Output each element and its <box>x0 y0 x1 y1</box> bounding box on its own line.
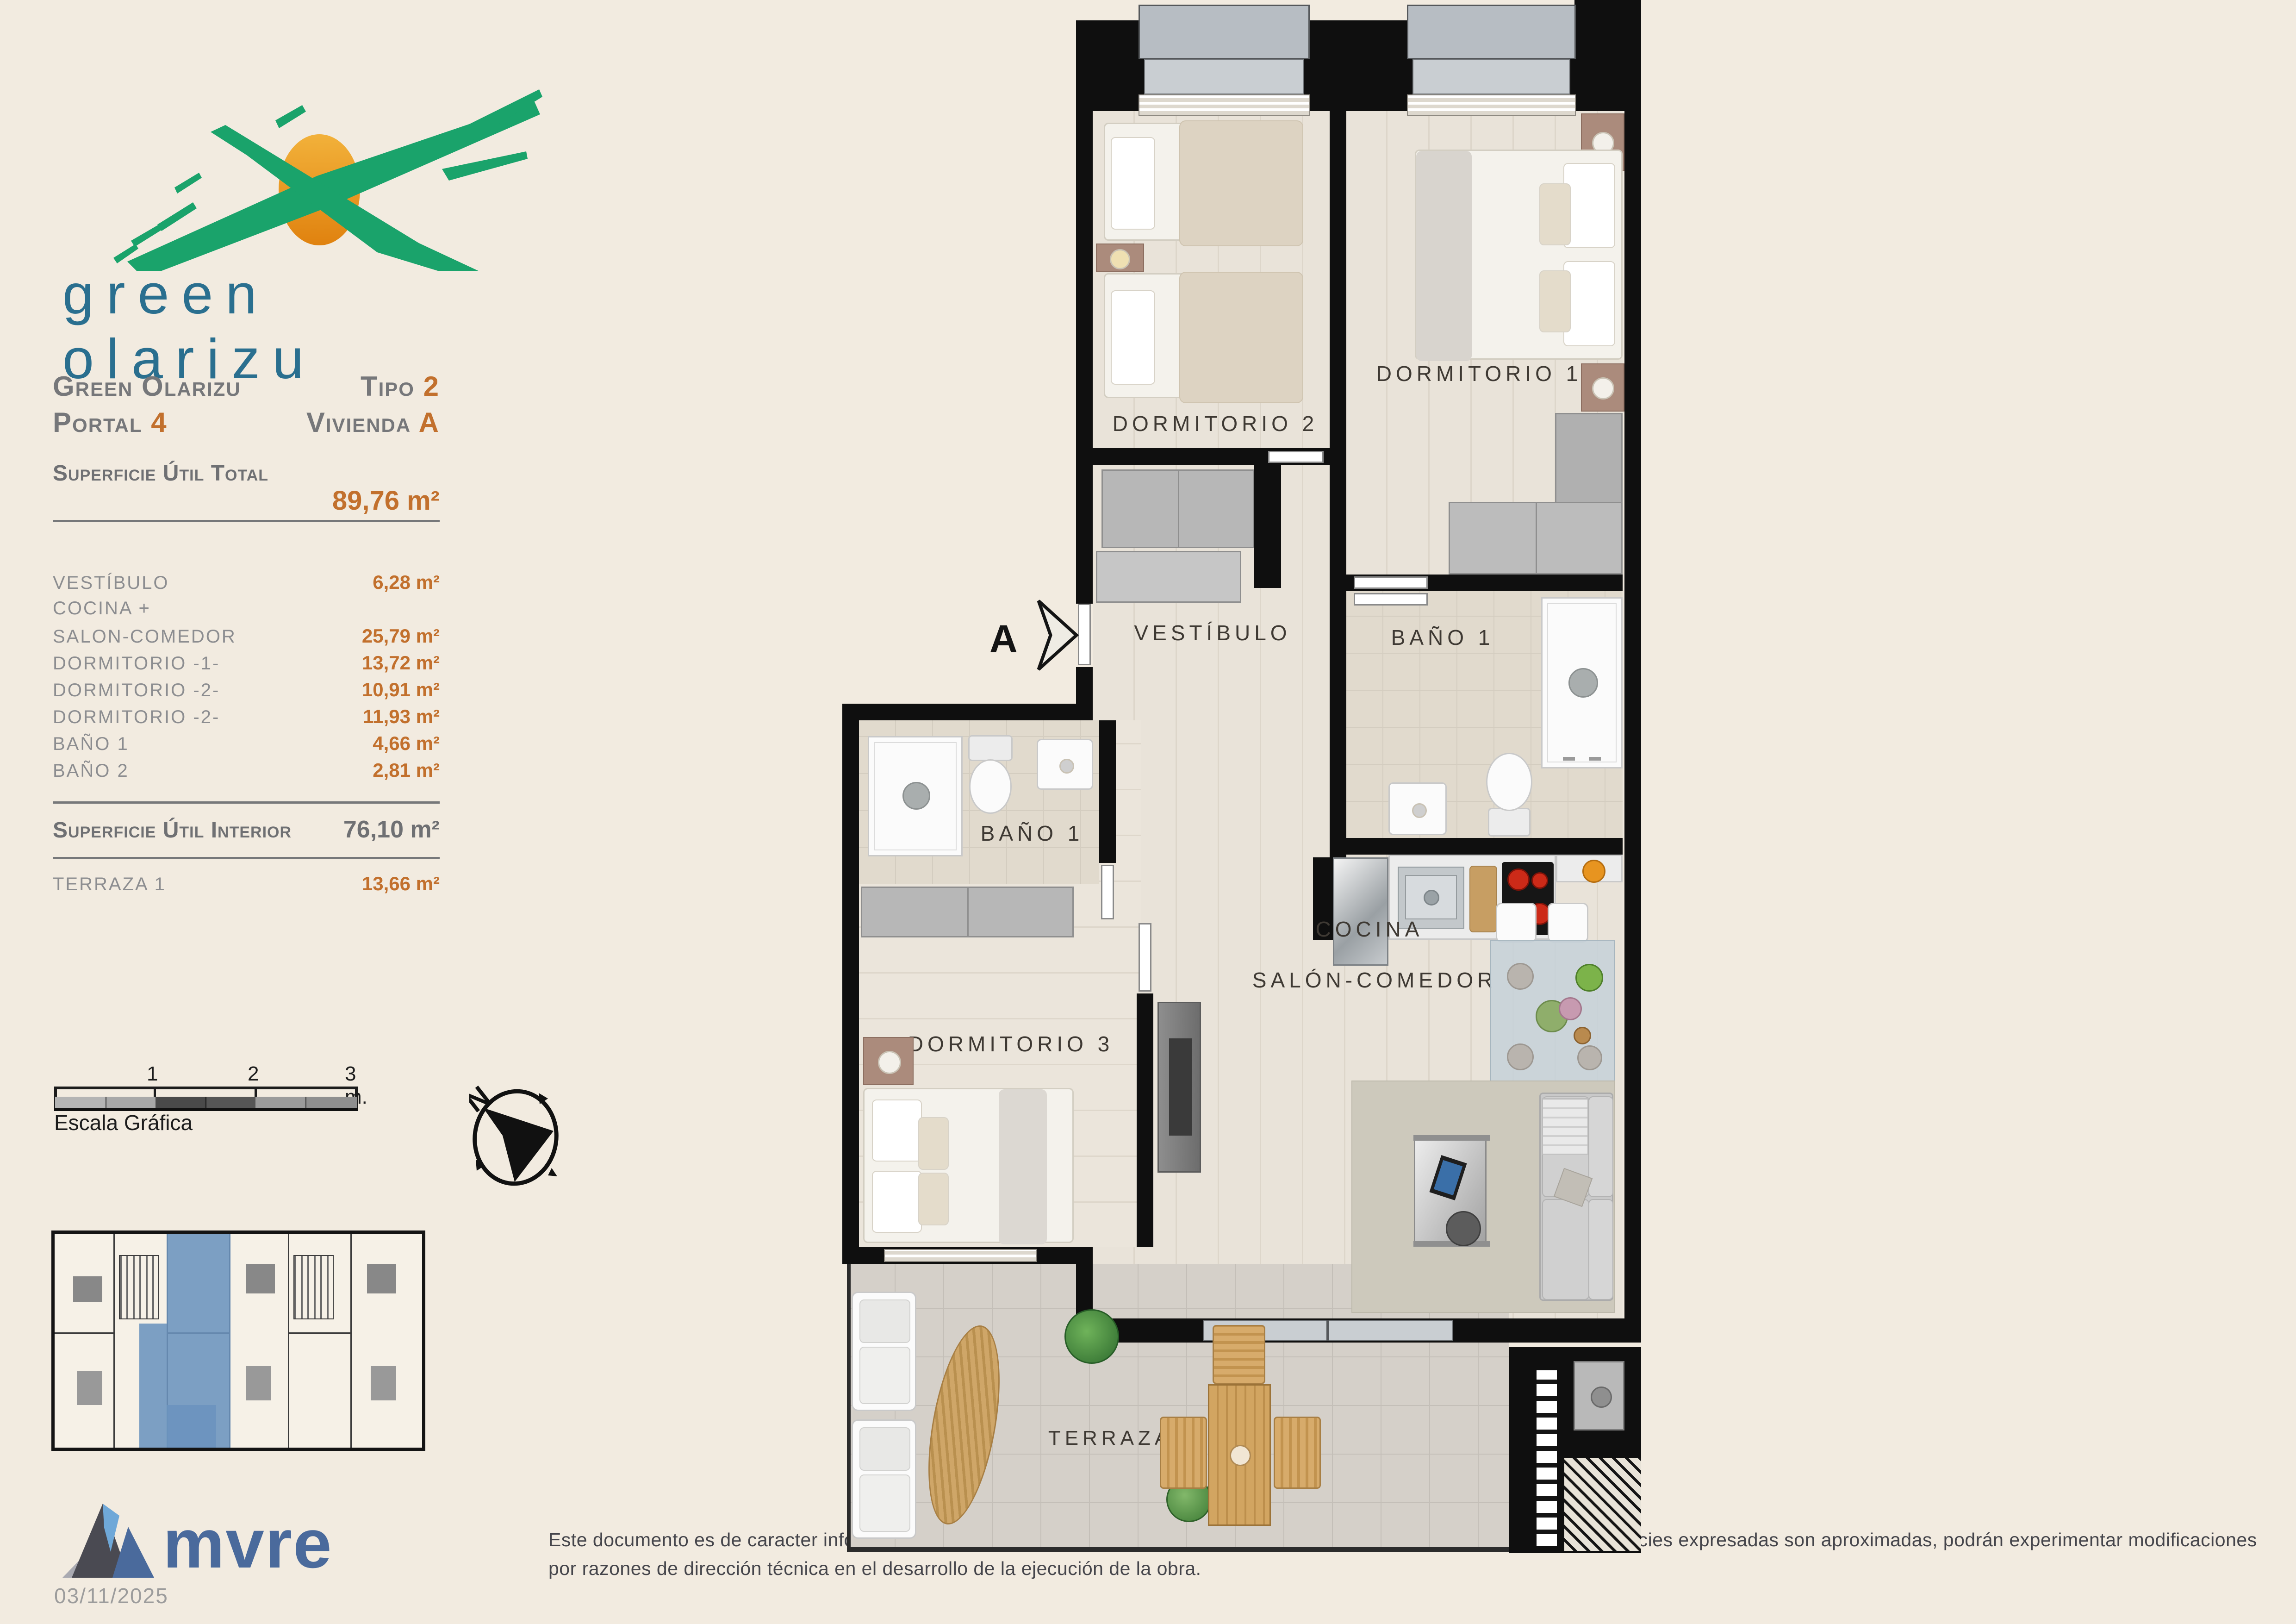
table-row: SALON-COMEDOR 25,79 m² <box>53 625 440 647</box>
compass: N <box>469 1086 562 1190</box>
dorm2-door <box>1268 451 1324 463</box>
vivienda-label: Vivienda <box>306 407 411 438</box>
window-living-mullion <box>1326 1320 1329 1341</box>
tipo: Tipo 2 <box>361 370 440 402</box>
keyplan-detail <box>246 1366 272 1400</box>
dorm1-door <box>1354 576 1428 589</box>
dining-chair <box>1496 903 1537 943</box>
stair-hatch <box>1564 1458 1641 1551</box>
wardrobe-dorm3 <box>861 887 1074 937</box>
scale-seg <box>55 1097 106 1108</box>
wall-bath1-left-upper <box>1330 469 1346 575</box>
lounger-2 <box>852 1419 916 1539</box>
keyplan-highlight-unit <box>139 1405 217 1448</box>
cutting-board <box>1469 866 1497 932</box>
tv-cabinet <box>1157 1002 1201 1173</box>
shower-bath1 <box>1541 597 1623 768</box>
coffee-table <box>1414 1137 1487 1245</box>
scale-seg <box>106 1097 156 1108</box>
vivienda-value: A <box>419 407 440 438</box>
portal-value: 4 <box>151 407 167 438</box>
room-value: 4,66 m² <box>373 732 440 755</box>
total-heading: Superficie Útil Total <box>53 461 268 486</box>
table-row: BAÑO 1 4,66 m² <box>53 732 440 755</box>
bed-double-dorm3 <box>863 1088 1074 1243</box>
shower-bath2 <box>868 736 963 856</box>
tablet <box>1429 1155 1467 1200</box>
table-row: BAÑO 2 2,81 m² <box>53 759 440 781</box>
room-value: 6,28 m² <box>373 571 440 593</box>
stair-railing <box>1537 1370 1557 1546</box>
room-value: 25,79 m² <box>362 625 440 647</box>
bath1-door <box>1354 593 1428 606</box>
room-label-salon: SALÓN-COMEDOR <box>1252 968 1497 993</box>
tipo-label: Tipo <box>361 371 415 402</box>
keyplan-stair-core <box>119 1255 159 1319</box>
plaid-blanket <box>1542 1098 1588 1155</box>
keyplan-wall <box>288 1234 289 1448</box>
table-row: DORMITORIO -1- 13,72 m² <box>53 652 440 674</box>
mvre-logo: mvre <box>59 1500 411 1579</box>
terraza-label: TERRAZA 1 <box>53 874 166 895</box>
wardrobe-dorm1-vertical <box>1555 413 1623 504</box>
keyplan-detail <box>371 1366 397 1400</box>
scale-seg <box>205 1097 256 1108</box>
nightstand-dorm1-bottom <box>1581 363 1624 412</box>
keyplan-detail <box>246 1264 275 1294</box>
fridge <box>1333 857 1388 966</box>
terrace-chair <box>1213 1325 1265 1384</box>
room-label: COCINA + <box>53 598 151 619</box>
terrace-chair <box>1160 1417 1207 1489</box>
utility-appliance <box>1574 1361 1624 1430</box>
room-label: DORMITORIO -2- <box>53 707 220 728</box>
room-value: 11,93 m² <box>363 706 440 728</box>
room-label: SALON-COMEDOR <box>53 626 236 647</box>
project-name: Green Olarizu <box>53 370 241 402</box>
terrace-railing-left <box>847 1264 851 1551</box>
nightstand-dorm3-top <box>863 1037 914 1085</box>
room-label-bano-right: BAÑO 1 <box>1391 625 1494 650</box>
divider-2 <box>53 801 440 804</box>
dining-chair <box>1548 903 1588 943</box>
keyplan-detail <box>77 1371 103 1405</box>
wall-west-horizontal <box>842 704 1093 720</box>
terraza-row: TERRAZA 1 13,66 m² <box>53 873 440 895</box>
terraza-value: 13,66 m² <box>362 873 440 895</box>
interior-value: 76,10 m² <box>343 816 440 843</box>
window-dorm3 <box>884 1249 1037 1262</box>
wall-bath2-right <box>1099 720 1116 863</box>
terrace-railing-bottom <box>847 1547 1509 1552</box>
keyplan-wall <box>288 1332 350 1334</box>
keyplan-stair-core <box>293 1255 334 1319</box>
closet-vestibulo-1 <box>1101 469 1254 548</box>
sink-bath1 <box>1388 782 1447 835</box>
room-label-terraza: TERRAZA <box>1048 1427 1172 1450</box>
room-label: BAÑO 2 <box>53 761 129 781</box>
total-value: 89,76 m² <box>53 485 440 516</box>
room-label: DORMITORIO -2- <box>53 680 220 701</box>
portal-label: Portal <box>53 407 143 438</box>
title-row-1: Green Olarizu Tipo 2 <box>53 370 440 402</box>
wardrobe-dorm1-horizontal <box>1449 502 1623 575</box>
floor-plan: A DORMITORIO 2 DORM <box>842 0 1664 1555</box>
room-value: 10,91 m² <box>362 679 440 701</box>
kitchen-counter-return <box>1556 855 1623 882</box>
entrance-letter: A <box>989 617 1018 662</box>
keyplan-wall <box>113 1234 115 1448</box>
table-row: COCINA + <box>53 598 440 619</box>
room-label: BAÑO 1 <box>53 734 129 755</box>
interior-label: Superficie Útil Interior <box>53 818 292 843</box>
bed-single-2 <box>1104 273 1303 398</box>
logo-brush-icon <box>58 76 548 271</box>
room-label: VESTÍBULO <box>53 573 169 593</box>
wall-bath1-bottom <box>1346 838 1623 855</box>
closet-vestibulo-2 <box>1096 551 1241 603</box>
table-row: DORMITORIO -2- 11,93 m² <box>53 706 440 728</box>
keyplan-wall <box>350 1234 352 1448</box>
interior-row: Superficie Útil Interior 76,10 m² <box>53 816 440 843</box>
room-label-cocina: COCINA <box>1316 917 1424 942</box>
entrance-door <box>1078 604 1091 665</box>
room-label-bano-left: BAÑO 1 <box>981 821 1084 846</box>
plant-1 <box>1064 1309 1119 1364</box>
divider-3 <box>53 857 440 859</box>
page: green olarizu Green Olarizu Tipo 2 Porta… <box>0 0 2296 1624</box>
keyplan-highlight-unit <box>139 1324 167 1405</box>
title-row-2: Portal 4 Vivienda A <box>53 406 440 438</box>
keyplan-detail <box>367 1264 397 1294</box>
mvre-wordmark: mvre <box>163 1504 333 1584</box>
scale-seg <box>255 1097 305 1108</box>
keyplan <box>51 1230 425 1451</box>
room-label-dorm2: DORMITORIO 2 <box>1113 411 1319 436</box>
divider-1 <box>53 520 440 522</box>
room-label-dorm3: DORMITORIO 3 <box>908 1031 1114 1056</box>
bed-throw <box>1416 151 1472 361</box>
sink-bath2 <box>1037 739 1093 790</box>
portal: Portal 4 <box>53 406 168 438</box>
terrace-chair <box>1274 1417 1321 1489</box>
wall-right <box>1624 111 1641 1318</box>
room-label-dorm1: DORMITORIO 1 <box>1376 361 1582 386</box>
date: 03/11/2025 <box>54 1583 168 1608</box>
table-row: VESTÍBULO 6,28 m² <box>53 571 440 593</box>
room-value: 2,81 m² <box>373 759 440 781</box>
compass-icon: N <box>469 1086 562 1190</box>
scale-tick-label-1: 1 <box>147 1062 158 1086</box>
room-label-vestibulo: VESTÍBULO <box>1134 620 1291 645</box>
logo: green olarizu <box>58 76 548 336</box>
wall-bath1-left <box>1330 591 1346 857</box>
nightstand-dorm2 <box>1096 244 1144 272</box>
bed-throw <box>999 1089 1047 1244</box>
mvre-mountains-icon <box>59 1500 156 1579</box>
tipo-value: 2 <box>423 371 440 402</box>
wall-far-left <box>842 720 859 1264</box>
scale-seg <box>156 1097 205 1108</box>
scale-tick-label-2: 2 <box>248 1062 259 1086</box>
keyplan-wall <box>55 1332 113 1334</box>
keyplan-detail <box>73 1276 103 1302</box>
dining-table <box>1490 940 1615 1090</box>
bath2-door <box>1101 865 1114 919</box>
wall-left-upper <box>1076 111 1093 604</box>
entrance-arrow-icon <box>1037 598 1079 672</box>
room-label: DORMITORIO -1- <box>53 653 220 674</box>
bed-double-dorm1 <box>1415 150 1623 360</box>
dorm3-door <box>1139 923 1151 992</box>
bed-single-1 <box>1104 123 1303 241</box>
scale-bracket <box>54 1087 358 1089</box>
lounger-1 <box>852 1292 916 1411</box>
decor-tray <box>1446 1211 1481 1246</box>
scale-caption: Escala Gráfica <box>54 1110 193 1135</box>
wall-closet-stub <box>1254 465 1281 588</box>
vivienda: Vivienda A <box>306 406 440 438</box>
table-row: DORMITORIO -2- 10,91 m² <box>53 679 440 701</box>
wall-top-right <box>1574 0 1641 44</box>
wall-dorm3-right <box>1137 993 1153 1247</box>
wall-dorm-divider <box>1330 111 1346 469</box>
scale-seg <box>305 1097 357 1108</box>
room-value: 13,72 m² <box>362 652 440 674</box>
terrace-table <box>1208 1384 1271 1526</box>
